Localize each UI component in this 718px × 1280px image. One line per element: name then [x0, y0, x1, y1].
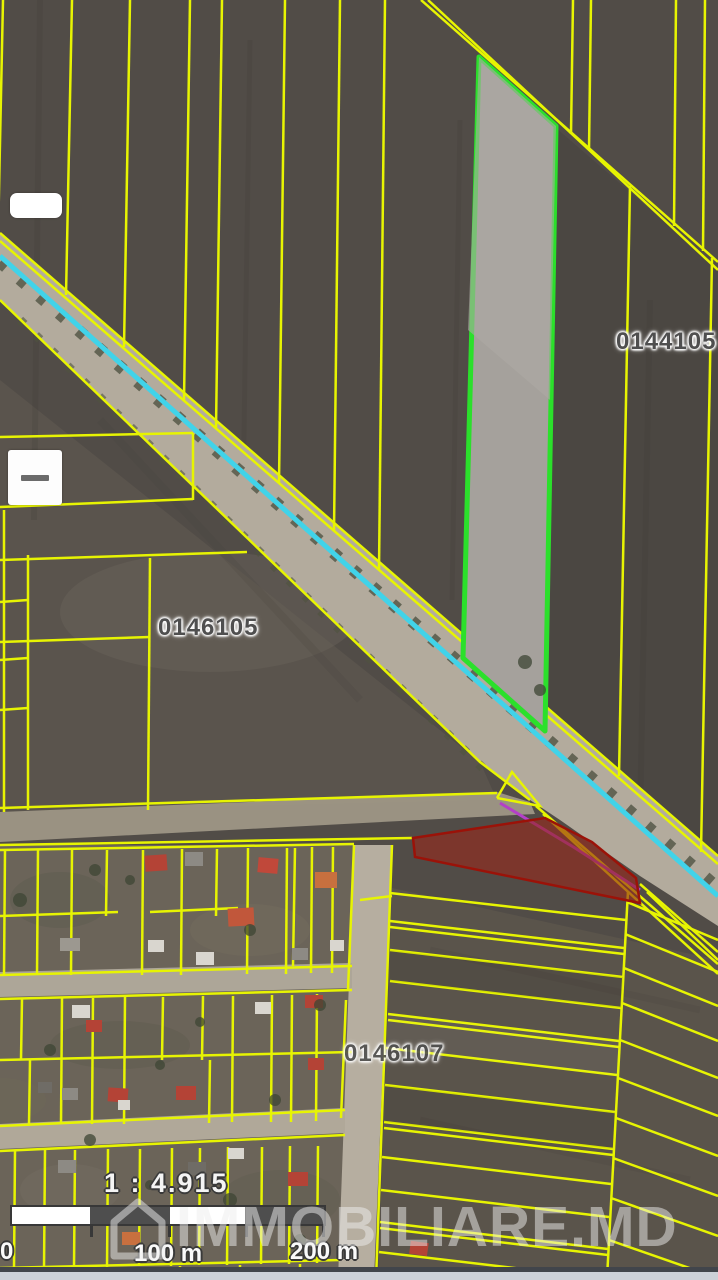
- scale-seg-2: [90, 1207, 170, 1224]
- map-canvas[interactable]: [0, 0, 718, 1280]
- scale-tick: [322, 1226, 325, 1237]
- cadastral-map-view[interactable]: 0144105 0146105 0146107 1 : 4.915 0 100 …: [0, 0, 718, 1280]
- scale-label-0: 0: [0, 1238, 13, 1266]
- zoom-out-button[interactable]: [8, 450, 62, 505]
- scale-bar: [10, 1205, 326, 1226]
- scale-label-200m: 200 m: [290, 1238, 358, 1266]
- scale-label-100m: 100 m: [134, 1240, 202, 1268]
- scale-ratio-text: 1 : 4.915: [104, 1168, 229, 1199]
- scale-tick: [90, 1226, 93, 1237]
- scale-tick: [168, 1226, 171, 1237]
- minus-icon: [21, 475, 49, 481]
- scale-seg-3: [170, 1207, 245, 1224]
- sector-label-0144105: 0144105: [616, 328, 716, 356]
- sector-label-0146107: 0146107: [344, 1040, 444, 1068]
- sector-label-0146105: 0146105: [158, 614, 258, 642]
- bottom-edge-strip: [0, 1272, 718, 1280]
- scale-seg-4: [245, 1207, 324, 1224]
- scale-tick: [245, 1226, 248, 1237]
- scale-seg-1: [12, 1207, 90, 1224]
- map-control-pill[interactable]: [10, 193, 62, 218]
